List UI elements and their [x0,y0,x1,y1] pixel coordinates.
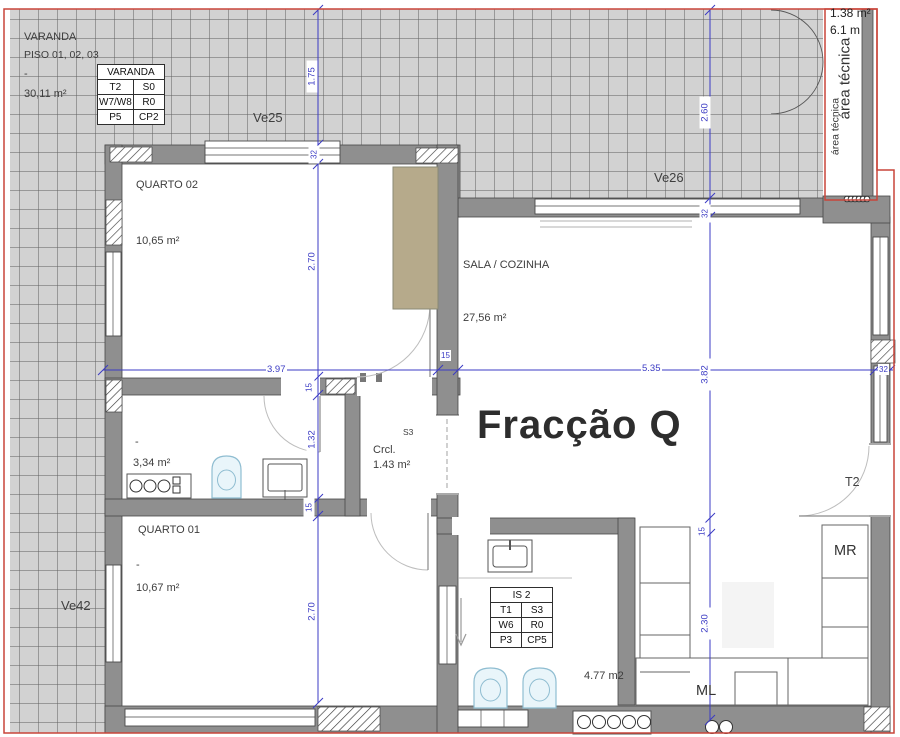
terrace-dash: - [24,68,28,80]
door-code-s3: S3 [403,428,413,437]
room-area-sala: 27,56 m² [463,312,506,324]
room-area-wc: 3,34 m² [133,457,170,469]
door-label-t2: T2 [845,476,860,490]
dim-label: 32 [309,146,320,164]
room-area-quarto01: 10,67 m² [136,582,179,594]
spec-cell: P3 [491,633,522,648]
room-label-sala: SALA / COZINHA [463,259,549,271]
spec-cell: T1 [491,603,522,618]
spec-cell: CP2 [133,110,164,125]
dim-label: 2.70 [307,596,318,628]
is2-table-header: IS 2 [491,588,553,603]
sink-fixture [263,459,307,500]
quarto01-dash: - [136,559,140,571]
dim-label: 3.97 [266,364,287,375]
dim-label: 15 [440,350,451,361]
terrace-name: VARANDA [24,31,76,43]
spec-cell: W6 [491,618,522,633]
room-area-quarto02: 10,65 m² [136,235,179,247]
window-code-ve26: Ve26 [654,171,684,185]
room-area-crcl: 1.43 m² [373,459,410,471]
toilet-fixture [523,668,556,708]
toilet-fixture [212,456,241,498]
varanda-table-header: VARANDA [98,65,165,80]
varanda-spec-table: VARANDA T2 S0 W7/W8 R0 P5 CP2 [97,64,165,125]
terrace-floors: PISO 01, 02, 03 [24,50,99,62]
dim-label: 15 [304,499,315,517]
is2-spec-table: IS 2 T1 S3 W6 R0 P3 CP5 [490,587,553,648]
dim-label: 32 [878,364,889,375]
dim-label: 5.35 [641,363,662,374]
page-title: Fracção Q [477,403,682,447]
kitchen-island [722,582,774,648]
spec-cell: R0 [133,95,164,110]
area-tecnica-label-2: área técnica [831,87,844,167]
room-label-crcl: Crcl. [373,444,396,456]
appliance-label-ml: ML [696,684,716,700]
dim-label: 1.32 [307,424,318,456]
dim-label: 3.82 [700,359,711,391]
spec-cell: R0 [522,618,553,633]
toilet-fixture [474,668,507,708]
spec-cell: W7/W8 [98,95,134,110]
spec-cell: T2 [98,80,134,95]
floorplan: VARANDA PISO 01, 02, 03 - 30,11 m² VARAN… [0,0,900,737]
room-label-quarto02: QUARTO 02 [136,179,198,191]
dim-label: 15 [697,523,708,541]
sink-fixture [488,540,532,572]
dim-label: 2.70 [307,246,318,278]
spec-cell: CP5 [522,633,553,648]
dim-label: 2.60 [700,97,711,129]
dim-label: 15 [304,379,315,397]
room-area-is2: 4.77 m2 [584,670,624,682]
wardrobe [393,167,438,309]
spec-cell: P5 [98,110,134,125]
area-tecnica-area: 1.38 m² [830,7,871,20]
terrace-area: 30,11 m² [24,88,67,100]
spec-cell: S0 [133,80,164,95]
spec-cell: S3 [522,603,553,618]
dim-label: 1.75 [307,61,318,93]
room-label-quarto01: QUARTO 01 [138,524,200,536]
radiator [127,474,191,498]
dim-label: 2.30 [700,608,711,640]
dim-label: 32 [700,205,711,223]
wc-dash: - [135,436,139,448]
window-code-ve25: Ve25 [253,111,283,125]
appliance-label-mr: MR [834,544,857,560]
window-code-ve42: Ve42 [61,599,91,613]
